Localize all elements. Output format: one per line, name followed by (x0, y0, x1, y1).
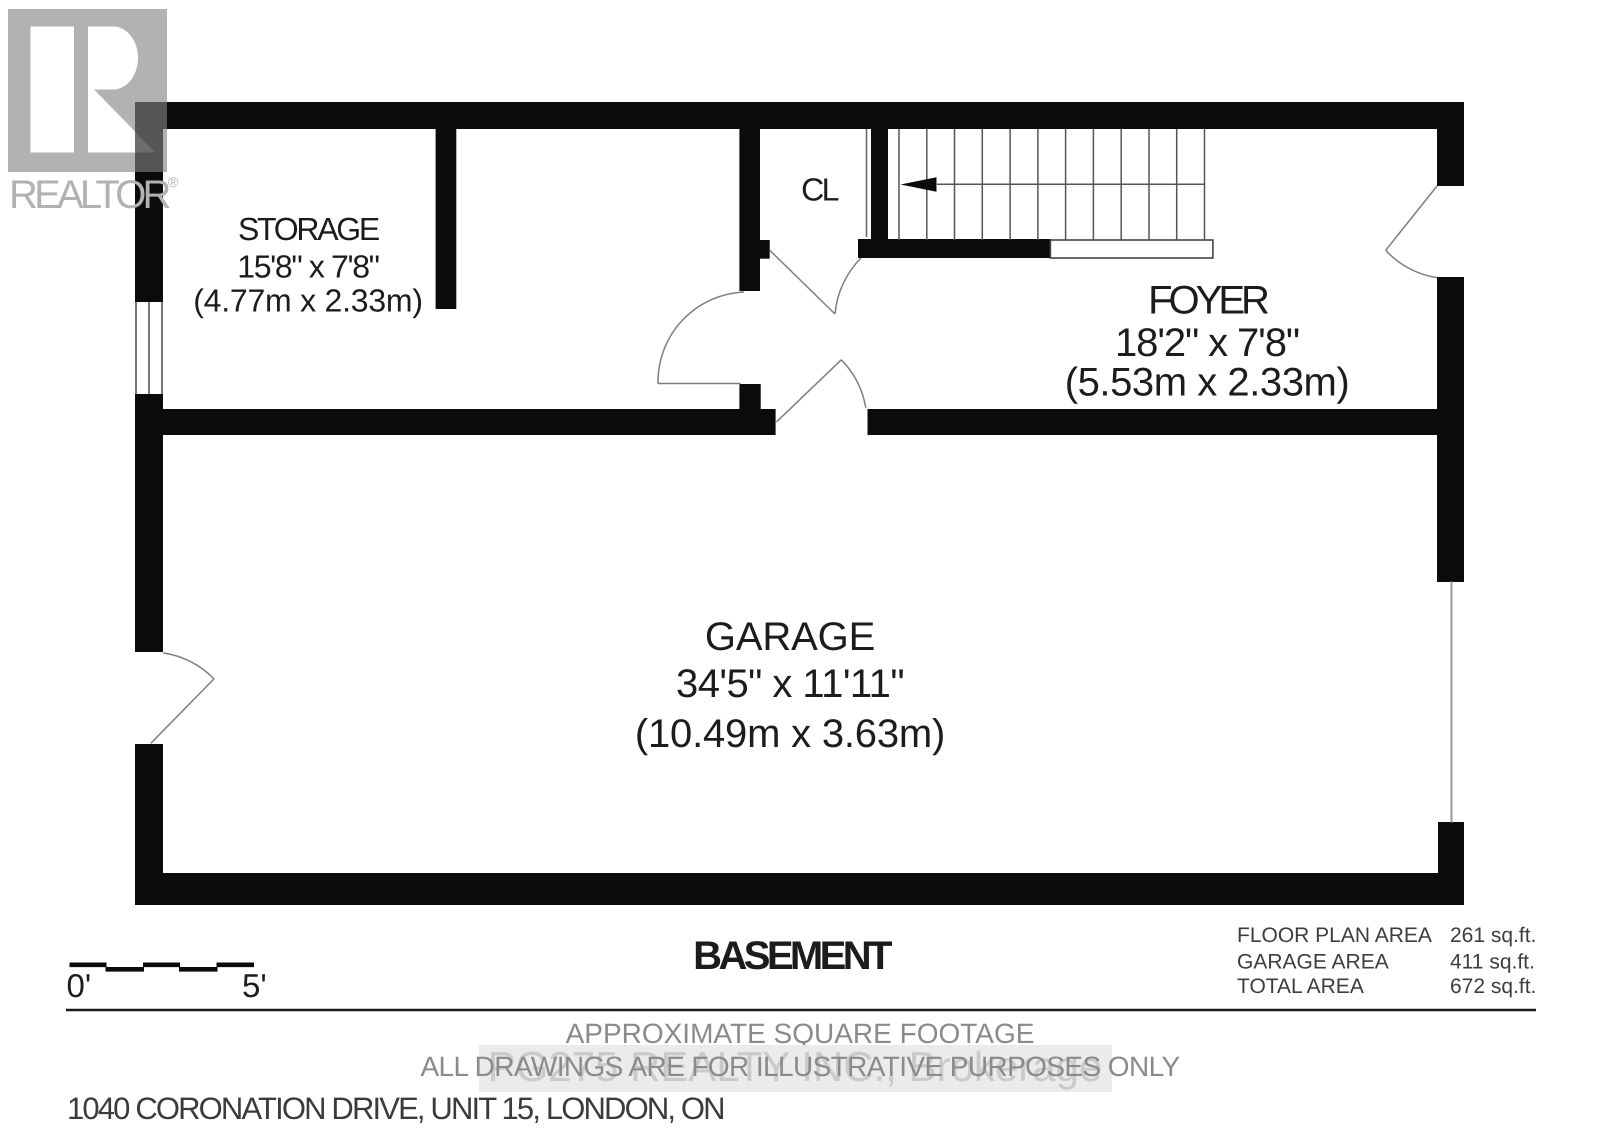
svg-text:672 sq.ft.: 672 sq.ft. (1450, 975, 1536, 998)
svg-text:34'5" x 11'11": 34'5" x 11'11" (676, 662, 904, 706)
svg-text:ALL DRAWINGS ARE FOR ILLUSTRAT: ALL DRAWINGS ARE FOR ILLUSTRATIVE PURPOS… (420, 1051, 1180, 1082)
svg-text:®: ® (168, 174, 179, 190)
svg-text:STORAGE: STORAGE (238, 211, 379, 247)
svg-text:(4.77m x 2.33m): (4.77m x 2.33m) (193, 283, 423, 319)
svg-text:0': 0' (67, 967, 92, 1004)
svg-text:15'8" x 7'8": 15'8" x 7'8" (237, 249, 378, 285)
svg-text:GARAGE: GARAGE (705, 615, 875, 659)
svg-text:CL: CL (801, 172, 839, 208)
svg-text:(5.53m x 2.33m): (5.53m x 2.33m) (1065, 361, 1349, 405)
svg-text:1040 CORONATION DRIVE, UNIT 15: 1040 CORONATION DRIVE, UNIT 15, LONDON, … (67, 1091, 724, 1126)
svg-text:(10.49m x 3.63m): (10.49m x 3.63m) (635, 712, 945, 756)
svg-text:411 sq.ft.: 411 sq.ft. (1450, 951, 1535, 974)
svg-text:FOYER: FOYER (1148, 279, 1269, 323)
svg-text:TOTAL AREA: TOTAL AREA (1237, 975, 1364, 998)
svg-text:18'2" x 7'8": 18'2" x 7'8" (1115, 321, 1299, 365)
svg-text:5': 5' (242, 967, 267, 1004)
svg-text:GARAGE AREA: GARAGE AREA (1237, 951, 1389, 974)
svg-text:REALTOR: REALTOR (9, 173, 171, 217)
svg-text:BASEMENT: BASEMENT (693, 934, 892, 978)
svg-text:261 sq.ft.: 261 sq.ft. (1450, 924, 1536, 947)
svg-text:FLOOR PLAN AREA: FLOOR PLAN AREA (1237, 924, 1432, 947)
